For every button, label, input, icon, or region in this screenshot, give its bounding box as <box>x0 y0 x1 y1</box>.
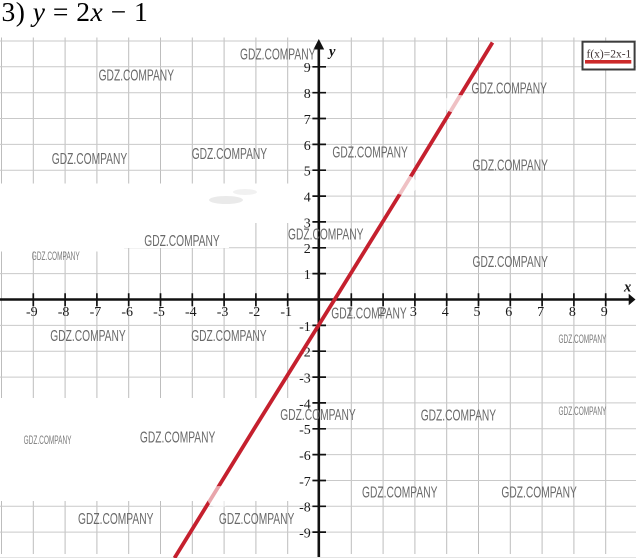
svg-text:3) y = 2x − 1: 3) y = 2x − 1 <box>2 0 149 27</box>
svg-text:GDZ.COMPANY: GDZ.COMPANY <box>240 45 315 63</box>
svg-text:GDZ.COMPANY: GDZ.COMPANY <box>332 143 407 161</box>
svg-text:-5: -5 <box>153 305 165 320</box>
svg-text:4: 4 <box>442 305 449 320</box>
svg-text:GDZ.COMPANY: GDZ.COMPANY <box>473 156 548 174</box>
svg-text:-7: -7 <box>299 475 311 490</box>
svg-text:-6: -6 <box>121 305 133 320</box>
svg-text:-4: -4 <box>185 305 197 320</box>
svg-text:-3: -3 <box>217 305 229 320</box>
svg-text:GDZ.COMPANY: GDZ.COMPANY <box>362 483 437 501</box>
svg-text:GDZ.COMPANY: GDZ.COMPANY <box>501 483 576 501</box>
svg-text:-5: -5 <box>299 423 311 438</box>
svg-text:GDZ.COMPANY: GDZ.COMPANY <box>140 428 215 446</box>
svg-text:-1: -1 <box>299 320 311 335</box>
svg-text:-2: -2 <box>249 305 261 320</box>
svg-text:5: 5 <box>474 305 481 320</box>
svg-text:f(x)=2x-1: f(x)=2x-1 <box>587 49 632 61</box>
svg-text:9: 9 <box>601 305 608 320</box>
svg-text:GDZ.COMPANY: GDZ.COMPANY <box>559 404 607 418</box>
svg-text:GDZ.COMPANY: GDZ.COMPANY <box>219 510 294 528</box>
svg-text:2: 2 <box>304 242 311 257</box>
svg-text:-3: -3 <box>299 371 311 386</box>
svg-text:8: 8 <box>569 305 576 320</box>
svg-text:3: 3 <box>410 305 417 320</box>
svg-text:GDZ.COMPANY: GDZ.COMPANY <box>472 79 547 97</box>
svg-text:x: x <box>623 280 631 296</box>
svg-text:-9: -9 <box>26 305 38 320</box>
svg-text:GDZ.COMPANY: GDZ.COMPANY <box>24 433 72 447</box>
svg-text:GDZ.COMPANY: GDZ.COMPANY <box>144 232 219 250</box>
svg-text:6: 6 <box>304 139 311 154</box>
svg-text:GDZ.COMPANY: GDZ.COMPANY <box>78 510 153 528</box>
svg-text:-7: -7 <box>90 305 102 320</box>
svg-text:5: 5 <box>304 165 311 180</box>
svg-text:-9: -9 <box>299 527 311 542</box>
svg-text:y: y <box>327 44 336 60</box>
svg-text:GDZ.COMPANY: GDZ.COMPANY <box>32 249 80 263</box>
svg-text:GDZ.COMPANY: GDZ.COMPANY <box>50 327 125 345</box>
svg-text:GDZ.COMPANY: GDZ.COMPANY <box>421 406 496 424</box>
svg-text:-8: -8 <box>299 501 311 516</box>
svg-text:GDZ.COMPANY: GDZ.COMPANY <box>52 150 127 168</box>
svg-text:-8: -8 <box>58 305 70 320</box>
svg-text:GDZ.COMPANY: GDZ.COMPANY <box>99 66 174 84</box>
svg-text:GDZ.COMPANY: GDZ.COMPANY <box>331 304 406 322</box>
svg-text:9: 9 <box>304 61 311 76</box>
svg-text:8: 8 <box>304 87 311 102</box>
svg-text:GDZ.COMPANY: GDZ.COMPANY <box>473 253 548 271</box>
svg-text:GDZ.COMPANY: GDZ.COMPANY <box>288 225 363 243</box>
svg-text:4: 4 <box>304 191 311 206</box>
svg-text:-1: -1 <box>280 305 292 320</box>
svg-text:GDZ.COMPANY: GDZ.COMPANY <box>191 327 266 345</box>
svg-text:7: 7 <box>537 305 544 320</box>
svg-text:6: 6 <box>505 305 512 320</box>
svg-text:1: 1 <box>304 268 311 283</box>
svg-text:7: 7 <box>304 113 311 128</box>
svg-text:-6: -6 <box>299 449 311 464</box>
svg-text:GDZ.COMPANY: GDZ.COMPANY <box>192 145 267 163</box>
svg-text:GDZ.COMPANY: GDZ.COMPANY <box>559 332 607 346</box>
svg-text:GDZ.COMPANY: GDZ.COMPANY <box>280 406 355 424</box>
